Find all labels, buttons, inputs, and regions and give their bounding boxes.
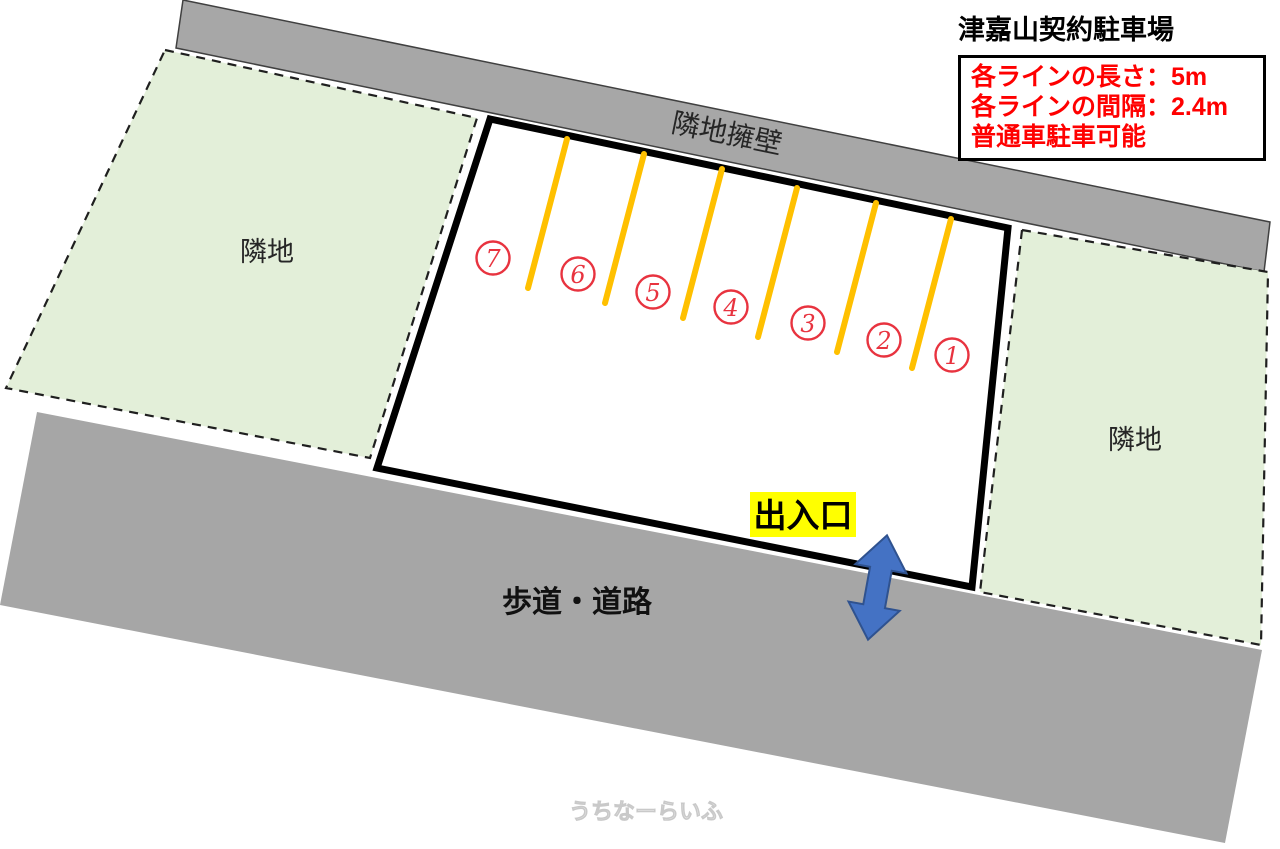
adjacent-lot-left-label: 隣地 <box>240 237 294 267</box>
stall-number: 1 <box>944 342 959 370</box>
diagram-canvas: 隣地擁壁 隣地 隣地 歩道・道路 7 6 5 4 <box>0 0 1280 849</box>
road-label: 歩道・道路 <box>502 586 653 619</box>
adjacent-lot-right-label: 隣地 <box>1108 425 1162 455</box>
entrance: 出入口 <box>750 492 856 537</box>
stall-number: 3 <box>800 310 815 338</box>
stall-number: 4 <box>722 294 738 322</box>
watermark: うちなーらいふ <box>569 799 723 824</box>
page-title: 津嘉山契約駐車場 <box>958 8 1268 47</box>
info-box: 各ラインの長さ：5m 各ラインの間隔：2.4m 普通車駐車可能 <box>958 55 1266 161</box>
stall-number: 7 <box>485 245 501 273</box>
entrance-label: 出入口 <box>754 497 853 534</box>
stall-number: 6 <box>570 261 585 289</box>
stall-number: 2 <box>875 327 891 355</box>
info-line-spacing: 各ラインの間隔：2.4m <box>971 92 1253 122</box>
info-line-length: 各ラインの長さ：5m <box>971 62 1253 92</box>
stall-number: 5 <box>645 279 660 307</box>
info-line-vehicle: 普通車駐車可能 <box>971 122 1253 152</box>
